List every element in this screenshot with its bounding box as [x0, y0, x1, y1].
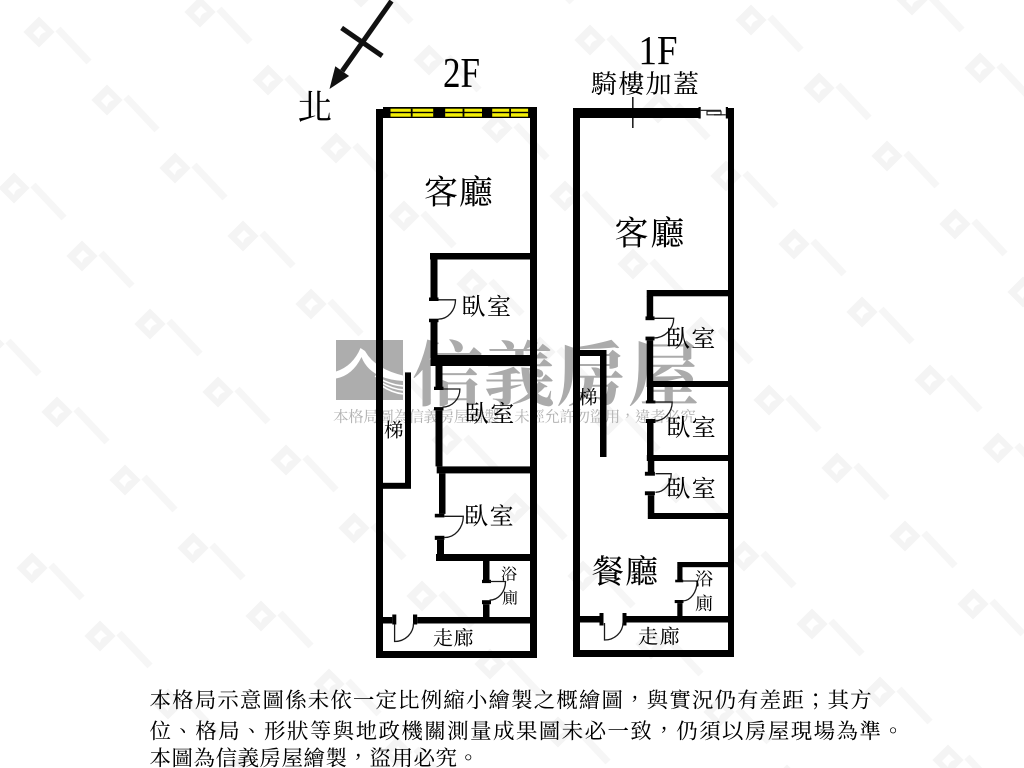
svg-text:1F: 1F [639, 27, 678, 73]
svg-text:2F: 2F [443, 51, 480, 97]
